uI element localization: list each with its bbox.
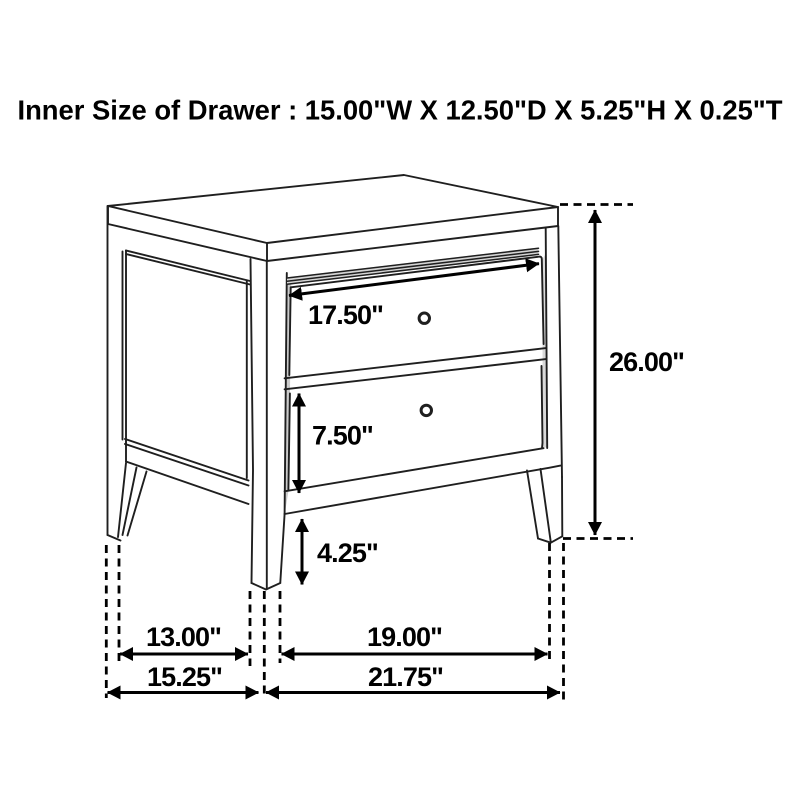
svg-text:19.00": 19.00" bbox=[367, 622, 442, 652]
svg-text:26.00": 26.00" bbox=[609, 347, 684, 377]
svg-text:4.25": 4.25" bbox=[317, 538, 378, 568]
svg-text:15.25": 15.25" bbox=[147, 662, 222, 692]
svg-text:17.50": 17.50" bbox=[308, 300, 383, 330]
svg-text:7.50": 7.50" bbox=[312, 421, 373, 451]
svg-text:21.75": 21.75" bbox=[368, 662, 443, 692]
svg-text:Inner Size of Drawer : 15.00"W: Inner Size of Drawer : 15.00"W X 12.50"D… bbox=[18, 95, 783, 126]
svg-text:13.00": 13.00" bbox=[146, 622, 221, 652]
